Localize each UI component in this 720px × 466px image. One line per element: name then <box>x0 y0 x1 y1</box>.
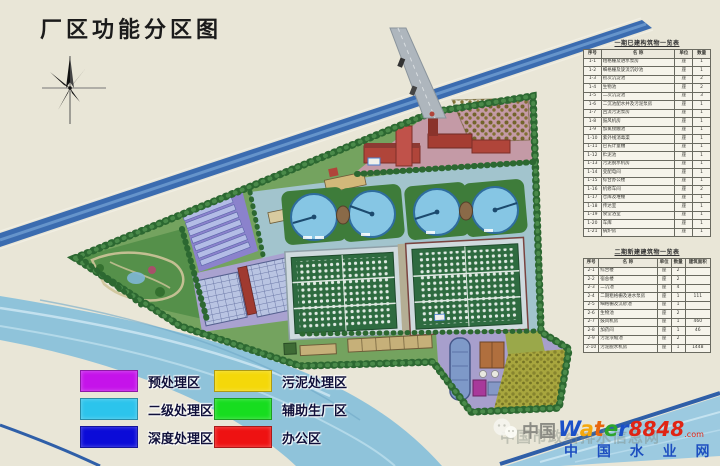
table-row: 1-16机修车间座2 <box>584 186 711 195</box>
table-cell: 座 <box>657 284 671 293</box>
table-cell: 1-12 <box>584 152 602 161</box>
legend-item-auxiliary: 辅助生厂区 <box>214 398 347 420</box>
table-cell: 1 <box>693 135 711 144</box>
legend-swatch <box>214 426 272 448</box>
table-cell: 宿舍楼 <box>599 276 657 285</box>
table-row: 1-11巴氏计量槽座1 <box>584 143 711 152</box>
table-cell: 2 <box>693 186 711 195</box>
table-cell: 4 <box>671 284 685 293</box>
table-cell: 座 <box>675 109 693 118</box>
table-cell: 座 <box>657 335 671 344</box>
legend-item-secondary: 二级处理区 <box>80 398 213 420</box>
table-cell: 二沉池配水井及污泥泵房 <box>601 101 675 110</box>
table-cell: 1-17 <box>584 194 602 203</box>
legend-item-advanced: 深度处理区 <box>80 426 213 448</box>
table-row: 2-1综合楼座2 <box>584 267 711 276</box>
table-row: 2-6生物池座2 <box>584 310 711 319</box>
watermark-site-name: 中 国 水 业 网 <box>564 441 717 461</box>
table-cell: 1 <box>693 58 711 67</box>
table-cell: 1 <box>693 118 711 127</box>
table-cell: 综合办公楼 <box>601 177 675 186</box>
table-cell: 1-6 <box>584 101 602 110</box>
table-cell: 粗格栅及进水泵房 <box>601 58 675 67</box>
table-cell: 1-19 <box>584 211 602 220</box>
table-cell: 变配电间 <box>601 169 675 178</box>
table-cell: 仓库及堆棚 <box>601 194 675 203</box>
table-cell: 贮泥池 <box>601 152 675 161</box>
legend-item-sludge: 污泥处理区 <box>214 370 347 392</box>
table-cell: 生物池 <box>601 84 675 93</box>
table-cell: 2 <box>671 267 685 276</box>
table-cell: 1448 <box>685 344 710 353</box>
table-row: 1-15综合办公楼座1 <box>584 177 711 186</box>
table-cell: 1-2 <box>584 67 602 76</box>
table-row: 1-6二沉池配水井及污泥泵房座1 <box>584 101 711 110</box>
legend-swatch <box>80 370 138 392</box>
table-cell: 座 <box>657 301 671 310</box>
table-cell: 回流污泥泵房 <box>601 109 675 118</box>
legend-label: 预处理区 <box>148 372 200 391</box>
table-row: 1-8鼓风机房座1 <box>584 118 711 127</box>
table-cell <box>685 267 710 276</box>
table-row: 2-10污泥脱水机房座11448 <box>584 344 711 353</box>
table-cell: 生物池 <box>599 310 657 319</box>
table-cell: 座 <box>675 126 693 135</box>
table-cell <box>685 276 710 285</box>
table-cell: 46 <box>685 327 710 336</box>
table-row: 2-3二沉池座4 <box>584 284 711 293</box>
table-cell: 加氯接触池 <box>601 126 675 135</box>
table-cell: 座 <box>675 75 693 84</box>
table-cell: 111 <box>685 293 710 302</box>
table-cell: 2-5 <box>584 301 599 310</box>
legend-label: 辅助生厂区 <box>282 400 347 419</box>
table-cell <box>685 335 710 344</box>
table-cell <box>685 284 710 293</box>
table-cell: 2 <box>671 276 685 285</box>
brand-dotcom: .com <box>684 430 704 439</box>
table-cell: 1-13 <box>584 160 602 169</box>
table-cell: 座 <box>657 267 671 276</box>
table-row: 2-9污泥浓缩池座2 <box>584 335 711 344</box>
table-row: 1-2细格栅及旋流沉砂池座1 <box>584 67 711 76</box>
table-cell: 鼓风机房 <box>601 118 675 127</box>
table-cell: 3 <box>693 92 711 101</box>
table-cell: 巴氏计量槽 <box>601 143 675 152</box>
table-header-cell: 名 称 <box>599 259 657 268</box>
table-cell: 1 <box>671 301 685 310</box>
table-cell: 1-1 <box>584 58 602 67</box>
table-cell: 座 <box>675 194 693 203</box>
table-cell: 车库 <box>601 220 675 229</box>
table-cell: 2-10 <box>584 344 599 353</box>
table-row: 1-12贮泥池座1 <box>584 152 711 161</box>
table-cell: 座 <box>675 220 693 229</box>
table-header-cell: 名 称 <box>601 50 675 59</box>
table-cell: 二沉池 <box>599 284 657 293</box>
table-cell: 1 <box>671 327 685 336</box>
legend-swatch <box>214 370 272 392</box>
table-cell: 2 <box>693 84 711 93</box>
table-cell: 2 <box>671 335 685 344</box>
table-cell: 污泥脱水机房 <box>601 160 675 169</box>
table-row: 1-3初次沉淀池座2 <box>584 75 711 84</box>
legend-swatch <box>80 426 138 448</box>
table-cell: 1 <box>693 228 711 237</box>
brand-number: 8848 <box>629 417 685 441</box>
table-cell: 1 <box>693 109 711 118</box>
table-cell: 1-16 <box>584 186 602 195</box>
table-cell: 2-8 <box>584 327 599 336</box>
table-cell: 1-18 <box>584 203 602 212</box>
table-row: 1-13污泥脱水机房座1 <box>584 160 711 169</box>
table-cell: 1 <box>693 126 711 135</box>
table-cell: 食堂浴室 <box>601 211 675 220</box>
table-cell: 1 <box>693 160 711 169</box>
table-cell: 2-1 <box>584 267 599 276</box>
table-cell: 细格栅及旋流沉砂池 <box>601 67 675 76</box>
table-cell: 1-4 <box>584 84 602 93</box>
table-row: 1-7回流污泥泵房座1 <box>584 109 711 118</box>
table-header-cell: 单位 <box>675 50 693 59</box>
table-cell: 1 <box>693 101 711 110</box>
legend-label: 二级处理区 <box>148 400 213 419</box>
table-cell: 细格栅及沉砂池 <box>599 301 657 310</box>
table-cell: 1 <box>693 211 711 220</box>
table-cell: 座 <box>657 310 671 319</box>
table-cell: 座 <box>675 84 693 93</box>
table-cell: 2-7 <box>584 318 599 327</box>
table-cell: 座 <box>675 211 693 220</box>
table-cell: 座 <box>657 293 671 302</box>
table-cell: 1-7 <box>584 109 602 118</box>
table-cell: 二期粗格栅及进水泵房 <box>599 293 657 302</box>
table-cell: 污泥浓缩池 <box>599 335 657 344</box>
legend-label: 污泥处理区 <box>282 372 347 391</box>
watermark-brand-row: 中国 Water 8848 .com <box>492 416 704 442</box>
table-header-cell: 建筑面积 <box>685 259 710 268</box>
page-title: 厂区功能分区图 <box>40 12 222 44</box>
table-cell: 加药间 <box>599 327 657 336</box>
table-cell: 2-9 <box>584 335 599 344</box>
table-cell: 2 <box>693 75 711 84</box>
table-header-cell: 序号 <box>584 259 599 268</box>
table-row: 1-19食堂浴室座1 <box>584 211 711 220</box>
table-header-cell: 单位 <box>657 259 671 268</box>
table-cell: 座 <box>657 276 671 285</box>
watermark-prefix: 中国 <box>522 417 556 442</box>
table-cell: 1-21 <box>584 228 602 237</box>
table-cell: 鼓风机房 <box>599 318 657 327</box>
table-cell: 1-8 <box>584 118 602 127</box>
wechat-icon <box>492 416 518 442</box>
table-cell: 1-14 <box>584 169 602 178</box>
table-cell: 1-20 <box>584 220 602 229</box>
legend-swatch <box>80 398 138 420</box>
table-cell: 座 <box>675 135 693 144</box>
table-row: 2-5细格栅及沉砂池座1 <box>584 301 711 310</box>
table-row: 1-9加氯接触池座1 <box>584 126 711 135</box>
table-cell: 座 <box>675 118 693 127</box>
gate-marker <box>430 112 435 117</box>
table-cell <box>685 301 710 310</box>
table-cell <box>685 310 710 319</box>
table-cell: 2 <box>671 310 685 319</box>
table-row: 1-20车库座1 <box>584 220 711 229</box>
table-cell: 座 <box>675 228 693 237</box>
table-cell: 1 <box>671 293 685 302</box>
table-row: 1-17仓库及堆棚座1 <box>584 194 711 203</box>
table-cell: 座 <box>675 101 693 110</box>
table-cell: 二次沉淀池 <box>601 92 675 101</box>
table-cell: 1-9 <box>584 126 602 135</box>
phase1-table: 一期已建构筑物一览表 序号名 称单位数量 1-1粗格栅及进水泵房座11-2细格栅… <box>583 38 711 237</box>
table-row: 1-18传达室座1 <box>584 203 711 212</box>
table-cell: 1 <box>693 203 711 212</box>
table-cell: 1 <box>693 177 711 186</box>
table-cell: 2-3 <box>584 284 599 293</box>
table-cell: 1 <box>693 169 711 178</box>
table-cell: 2-4 <box>584 293 599 302</box>
table-row: 1-21锅炉房座1 <box>584 228 711 237</box>
table-row: 2-2宿舍楼座2 <box>584 276 711 285</box>
table-header-cell: 数量 <box>693 50 711 59</box>
table-cell: 座 <box>675 177 693 186</box>
table-cell: 1 <box>671 318 685 327</box>
table-row: 1-4生物池座2 <box>584 84 711 93</box>
table-cell: 1-5 <box>584 92 602 101</box>
table-cell: 传达室 <box>601 203 675 212</box>
legend-item-pretreatment: 预处理区 <box>80 370 200 392</box>
table-cell: 综合楼 <box>599 267 657 276</box>
structure-tables: 一期已建构筑物一览表 序号名 称单位数量 1-1粗格栅及进水泵房座11-2细格栅… <box>583 38 711 353</box>
table-cell: 座 <box>657 344 671 353</box>
table-cell: 1 <box>671 344 685 353</box>
table-cell: 2-6 <box>584 310 599 319</box>
table-header-cell: 数量 <box>671 259 685 268</box>
table-cell: 1 <box>693 152 711 161</box>
table-title: 二期新建建筑物一览表 <box>583 247 711 256</box>
table-cell: 2-2 <box>584 276 599 285</box>
table-cell: 1-3 <box>584 75 602 84</box>
table-cell: 1-15 <box>584 177 602 186</box>
table-cell: 1 <box>693 143 711 152</box>
table-row: 2-4二期粗格栅及进水泵房座1111 <box>584 293 711 302</box>
watermark: 中国市政给排水信息网 中国 Water 8848 .com 中 国 水 业 网 <box>492 414 717 464</box>
table-cell: 座 <box>675 143 693 152</box>
table-cell: 1 <box>693 194 711 203</box>
table-cell: 座 <box>675 58 693 67</box>
legend-swatch <box>214 398 272 420</box>
legend-label: 办公区 <box>282 428 321 447</box>
table-cell: 1-10 <box>584 135 602 144</box>
table-cell: 初次沉淀池 <box>601 75 675 84</box>
table-header-cell: 序号 <box>584 50 602 59</box>
table-cell: 座 <box>675 160 693 169</box>
table-title: 一期已建构筑物一览表 <box>583 38 711 47</box>
table-cell: 座 <box>675 67 693 76</box>
table-cell: 座 <box>675 92 693 101</box>
table-cell: 座 <box>657 318 671 327</box>
table-cell: 460 <box>685 318 710 327</box>
table-cell: 座 <box>675 152 693 161</box>
table-cell: 污泥脱水机房 <box>599 344 657 353</box>
table-cell: 锅炉房 <box>601 228 675 237</box>
brand-water-wordmark: Water <box>558 417 629 441</box>
aeration-tanks <box>285 237 528 341</box>
table-row: 1-1粗格栅及进水泵房座1 <box>584 58 711 67</box>
table-cell: 座 <box>675 203 693 212</box>
table-row: 1-5二次沉淀池座3 <box>584 92 711 101</box>
plant-zoning-poster: 厂区功能分区图 预处理区 污泥处理区 二级处理区 辅助生厂区 深度处理区 办公区 <box>0 0 720 466</box>
table-cell: 机修车间 <box>601 186 675 195</box>
table-row: 2-8加药间座146 <box>584 327 711 336</box>
table-cell: 座 <box>675 169 693 178</box>
table-cell: 紫外线消毒渠 <box>601 135 675 144</box>
legend-label: 深度处理区 <box>148 428 213 447</box>
table-row: 1-10紫外线消毒渠座1 <box>584 135 711 144</box>
phase2-table: 二期新建建筑物一览表 序号名 称单位数量建筑面积 2-1综合楼座22-2宿舍楼座… <box>583 247 711 353</box>
table-cell: 1-11 <box>584 143 602 152</box>
table-cell: 1 <box>693 220 711 229</box>
table-cell: 1 <box>693 67 711 76</box>
table-row: 1-14变配电间座1 <box>584 169 711 178</box>
legend-item-office: 办公区 <box>214 426 321 448</box>
table-cell: 座 <box>675 186 693 195</box>
table-cell: 座 <box>657 327 671 336</box>
table-row: 2-7鼓风机房座1460 <box>584 318 711 327</box>
